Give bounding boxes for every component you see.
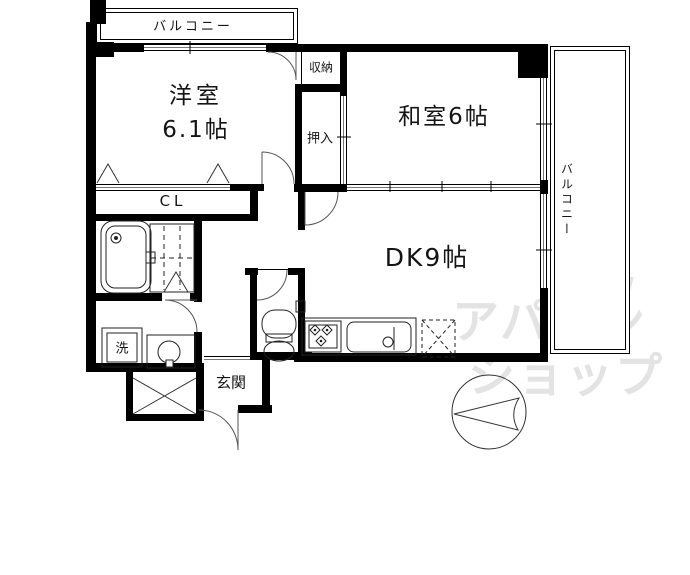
door-arc-washroom: [165, 300, 197, 332]
window-tick-marks: [190, 41, 552, 250]
closet-fold-door-icon: [207, 164, 229, 183]
label-japanese-room: 和室6帖: [398, 97, 490, 131]
compass-icon: [452, 375, 526, 449]
label-laundry: 洗: [115, 338, 128, 357]
floorplan: アパマン ショップ w L: [0, 0, 690, 575]
washbasin-tap-icon: [166, 360, 173, 367]
toilet-icon: [262, 301, 305, 361]
sink-icon: [347, 322, 411, 352]
refrigerator-space-icon: [422, 320, 455, 357]
label-oshiire: 押入: [307, 128, 333, 147]
label-balcony-top: バルコニー: [153, 16, 233, 35]
bathtub-drain-dot: [115, 237, 118, 240]
door-arc-west-room: [262, 152, 294, 184]
stove-burner-icon: [310, 325, 332, 346]
label-balcony-right: バルコニー: [559, 163, 576, 238]
door-arc-entrance: [199, 410, 238, 450]
label-dk: DK9帖: [385, 238, 470, 274]
door-arc-toilet: [257, 270, 287, 300]
stove-icon: [305, 321, 341, 352]
pipe-space-cross-icon: [133, 378, 196, 414]
label-western-room: 洋室: [169, 76, 223, 110]
sink-faucet-icon: [383, 337, 393, 347]
bath-fold-door-icon: [164, 272, 188, 292]
door-arc-dk: [305, 192, 338, 225]
closet-fold-door-icon: [97, 164, 119, 183]
kitchen-counter: [302, 318, 416, 355]
label-cl: CL: [160, 192, 187, 210]
label-entrance: 玄関: [216, 372, 246, 393]
label-storage: 収納: [309, 59, 333, 76]
toilet-paper-holder-icon: [296, 301, 305, 312]
fixtures-layer: [0, 0, 690, 575]
bathtub-icon: [101, 221, 151, 293]
door-arc-storage: [268, 52, 296, 80]
label-western-room-size: 6.1帖: [162, 110, 230, 144]
